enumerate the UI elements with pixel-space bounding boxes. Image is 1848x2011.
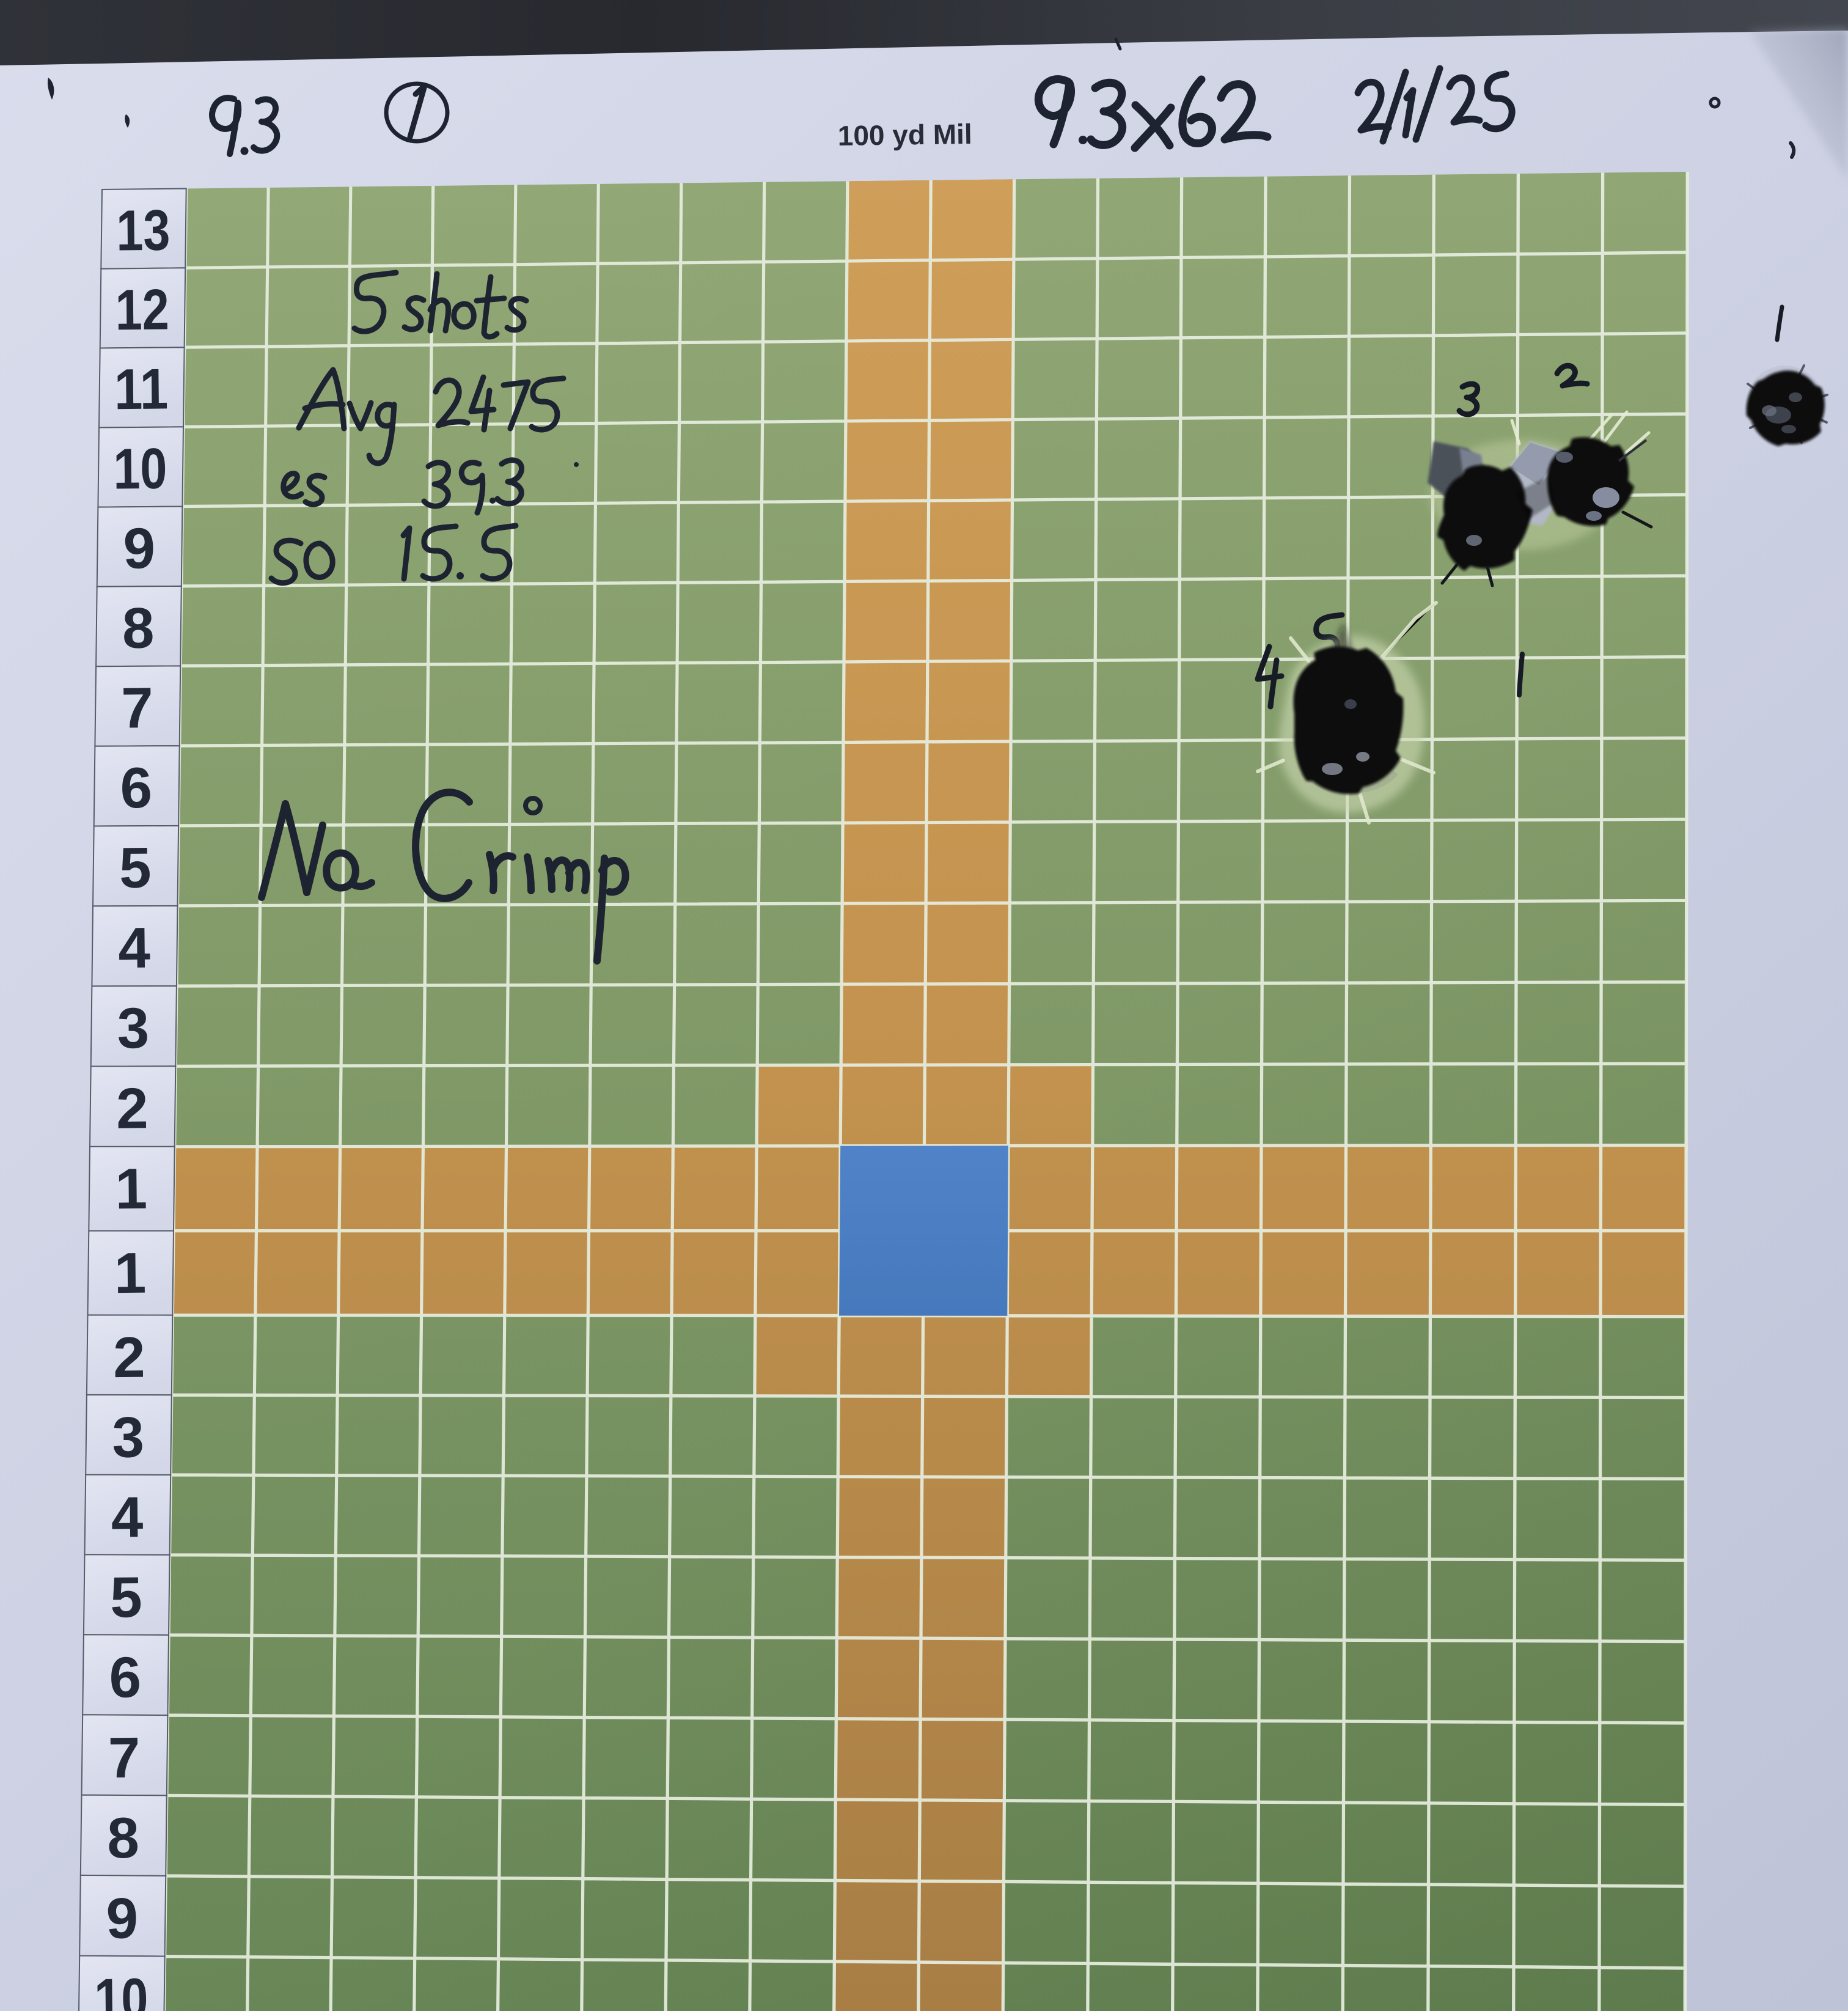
svg-text:1: 1 [115, 1156, 147, 1221]
svg-text:9: 9 [123, 516, 155, 581]
svg-text:12: 12 [115, 277, 169, 342]
svg-text:8: 8 [122, 595, 154, 660]
svg-text:11: 11 [114, 356, 169, 421]
svg-text:5: 5 [110, 1565, 142, 1630]
svg-text:3: 3 [112, 1405, 144, 1469]
svg-text:10: 10 [94, 1966, 148, 2011]
svg-text:100 yd Mil: 100 yd Mil [837, 118, 972, 152]
svg-text:1: 1 [114, 1241, 146, 1306]
svg-text:5: 5 [119, 836, 152, 900]
svg-text:2: 2 [113, 1325, 145, 1390]
svg-text:4: 4 [118, 916, 150, 980]
svg-text:2: 2 [116, 1076, 148, 1141]
svg-text:7: 7 [121, 675, 153, 740]
svg-text:9: 9 [106, 1886, 138, 1950]
svg-text:6: 6 [109, 1645, 141, 1710]
svg-text:8: 8 [107, 1806, 139, 1870]
svg-text:6: 6 [120, 756, 152, 820]
svg-text:13: 13 [116, 198, 170, 263]
svg-text:4: 4 [111, 1485, 143, 1550]
svg-text:10: 10 [113, 436, 167, 501]
svg-text:7: 7 [108, 1725, 140, 1790]
svg-text:3: 3 [117, 996, 149, 1061]
